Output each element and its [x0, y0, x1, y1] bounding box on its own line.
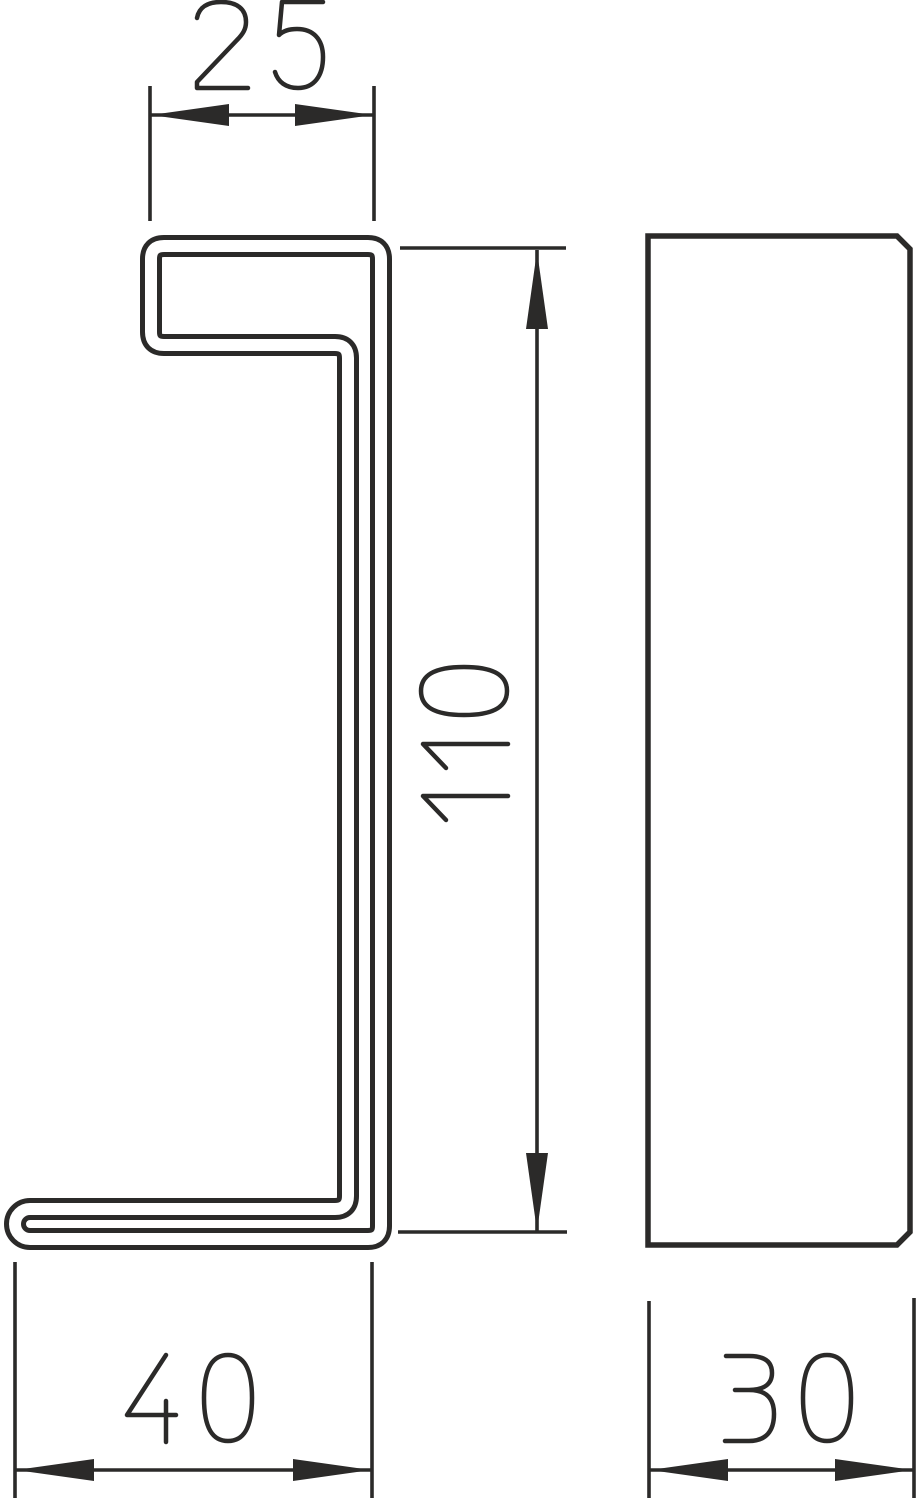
digit-1 — [423, 744, 508, 768]
digit-1 — [423, 796, 508, 820]
technical-drawing-canvas: Profile cross-section technical drawing … — [0, 0, 918, 1500]
digit-0 — [803, 1355, 851, 1441]
dimension-label-bottom-width — [127, 1355, 252, 1442]
digit-3 — [725, 1356, 774, 1441]
dimension-top-width — [150, 2, 374, 221]
dimension-label-height — [421, 667, 508, 820]
dimension-label-depth — [725, 1355, 851, 1441]
arrowhead-down — [526, 1153, 548, 1231]
digit-0 — [421, 667, 507, 715]
arrowhead-right — [293, 1459, 371, 1481]
digit-2 — [197, 2, 248, 88]
digit-4 — [127, 1355, 176, 1442]
dimension-bottom-width — [15, 1262, 372, 1498]
arrowhead-left — [16, 1459, 94, 1481]
arrowhead-up — [526, 251, 548, 329]
drawing-sheet: Profile cross-section technical drawing … — [0, 0, 918, 1500]
dimension-depth — [649, 1298, 914, 1498]
side-view-outline — [648, 236, 910, 1245]
profile-wall-core — [15, 246, 381, 1239]
digit-0 — [204, 1355, 252, 1441]
dimension-height — [398, 248, 567, 1232]
arrowhead-left — [151, 104, 229, 126]
arrowhead-left — [650, 1459, 728, 1481]
digit-5 — [275, 2, 323, 88]
arrowhead-right — [295, 104, 373, 126]
arrowhead-right — [835, 1459, 913, 1481]
profile-wall-outline — [15, 246, 381, 1239]
side-view-rectangle — [648, 236, 910, 1245]
front-view-profile — [15, 246, 381, 1239]
dimension-label-top-width — [197, 2, 323, 88]
